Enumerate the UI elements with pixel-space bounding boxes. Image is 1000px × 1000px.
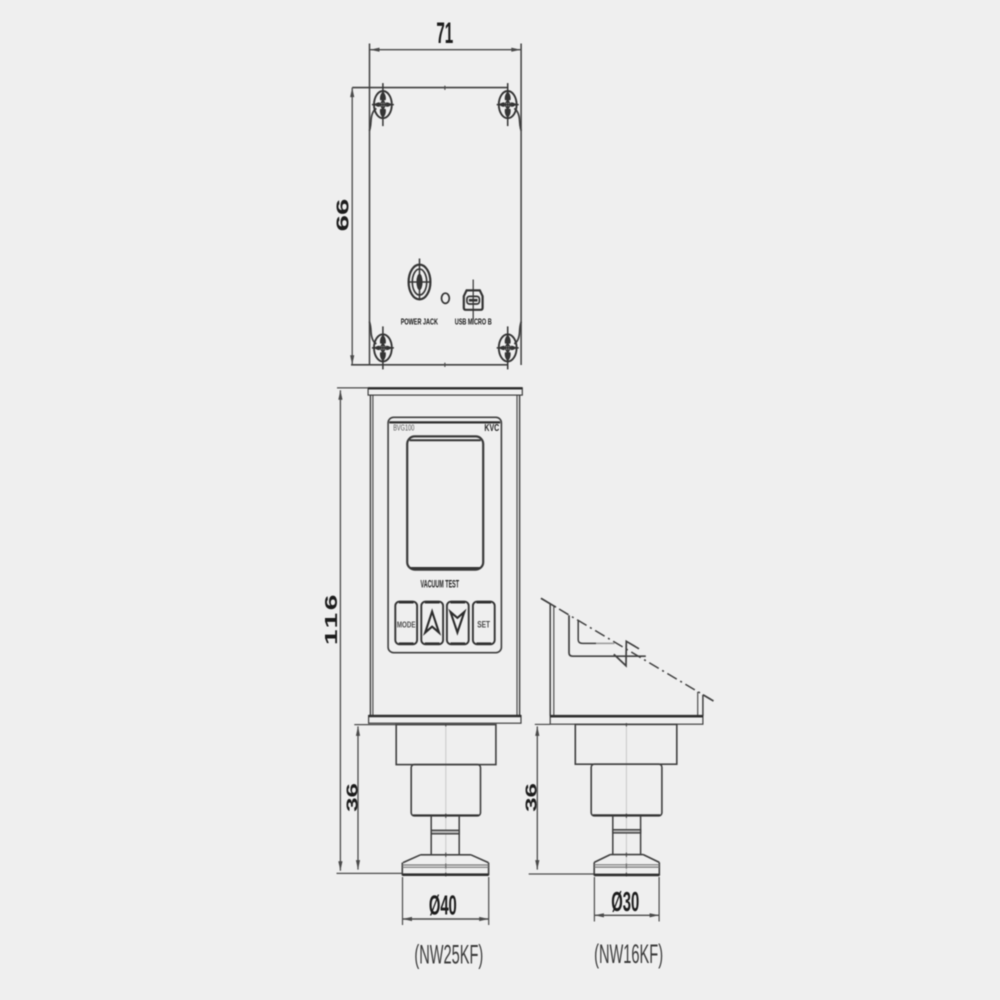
- svg-text:66: 66: [333, 199, 352, 232]
- svg-text:71: 71: [436, 17, 453, 50]
- svg-text:36: 36: [343, 783, 361, 812]
- svg-text:MODE: MODE: [397, 619, 416, 629]
- svg-text:(NW16KF): (NW16KF): [594, 938, 663, 969]
- svg-text:VACUUM TEST: VACUUM TEST: [421, 578, 460, 590]
- svg-text:USB MICRO B: USB MICRO B: [455, 319, 492, 327]
- svg-text:BVG100: BVG100: [393, 424, 414, 433]
- svg-text:116: 116: [322, 592, 341, 645]
- svg-text:36: 36: [522, 783, 540, 812]
- svg-text:POWER JACK: POWER JACK: [401, 319, 438, 327]
- svg-text:(NW25KF): (NW25KF): [414, 939, 483, 970]
- svg-text:KVC: KVC: [484, 422, 499, 434]
- svg-text:SET: SET: [477, 619, 490, 629]
- svg-text:Ø40: Ø40: [429, 890, 457, 921]
- svg-text:Ø30: Ø30: [611, 886, 639, 917]
